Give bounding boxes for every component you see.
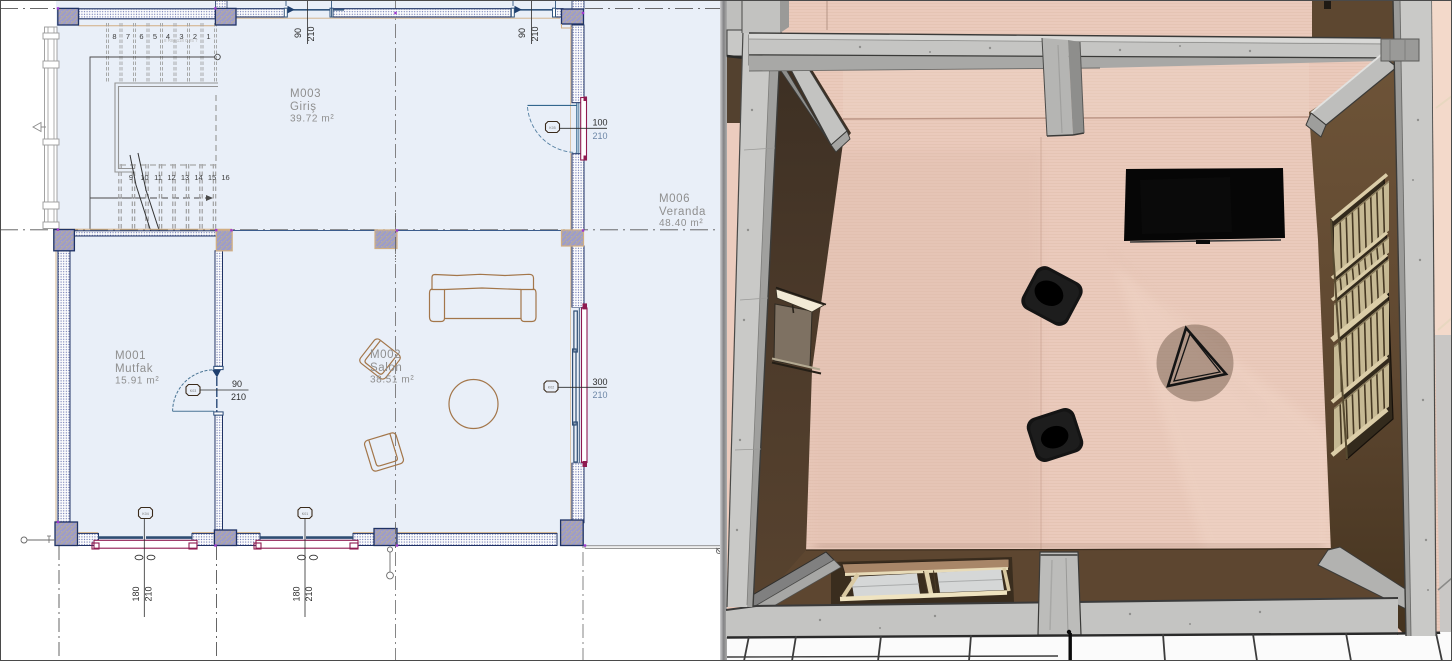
svg-text:210: 210 xyxy=(530,26,540,41)
svg-text:10: 10 xyxy=(140,173,148,182)
svg-text:M001: M001 xyxy=(115,350,146,362)
svg-text:210: 210 xyxy=(592,390,607,400)
svg-text:5: 5 xyxy=(153,32,157,41)
svg-text:38.51 m²: 38.51 m² xyxy=(370,375,414,386)
svg-text:210: 210 xyxy=(304,586,314,601)
svg-text:K03: K03 xyxy=(190,389,196,393)
svg-text:Mutfak: Mutfak xyxy=(115,363,153,375)
svg-text:15: 15 xyxy=(208,173,216,182)
svg-text:Veranda: Veranda xyxy=(659,206,706,218)
svg-text:7: 7 xyxy=(126,32,130,41)
svg-text:39.72 m²: 39.72 m² xyxy=(290,114,334,125)
svg-text:K04: K04 xyxy=(142,512,148,516)
svg-text:100: 100 xyxy=(592,118,607,128)
svg-text:8: 8 xyxy=(112,32,116,41)
svg-text:Salon: Salon xyxy=(370,362,402,374)
svg-text:180: 180 xyxy=(131,586,141,601)
svg-text:210: 210 xyxy=(306,26,316,41)
svg-text:300: 300 xyxy=(592,377,607,387)
svg-text:9: 9 xyxy=(129,173,133,182)
svg-text:14: 14 xyxy=(194,173,202,182)
svg-text:M002: M002 xyxy=(370,349,401,361)
svg-text:90: 90 xyxy=(232,379,242,389)
svg-text:15.91 m²: 15.91 m² xyxy=(115,376,159,387)
svg-text:12: 12 xyxy=(167,173,175,182)
svg-text:K01: K01 xyxy=(302,512,308,516)
svg-text:90: 90 xyxy=(517,28,527,38)
svg-text:K05: K05 xyxy=(549,126,555,130)
svg-text:90: 90 xyxy=(293,28,303,38)
svg-text:210: 210 xyxy=(592,131,607,141)
svg-text:210: 210 xyxy=(144,586,154,601)
svg-text:13: 13 xyxy=(181,173,189,182)
svg-text:1: 1 xyxy=(206,32,210,41)
svg-text:210: 210 xyxy=(231,392,246,402)
svg-text:11: 11 xyxy=(154,173,162,182)
svg-text:48.40 m²: 48.40 m² xyxy=(659,218,703,229)
svg-text:16: 16 xyxy=(221,173,229,182)
svg-text:K02: K02 xyxy=(548,386,554,390)
svg-text:Giriş: Giriş xyxy=(290,101,317,113)
svg-text:8 RIH 118 0.25 7: 8 RIH 118 0.25 7 xyxy=(164,38,198,43)
svg-text:M003: M003 xyxy=(290,88,321,100)
svg-text:M006: M006 xyxy=(659,193,690,205)
svg-text:6: 6 xyxy=(139,32,143,41)
svg-text:180: 180 xyxy=(292,586,302,601)
